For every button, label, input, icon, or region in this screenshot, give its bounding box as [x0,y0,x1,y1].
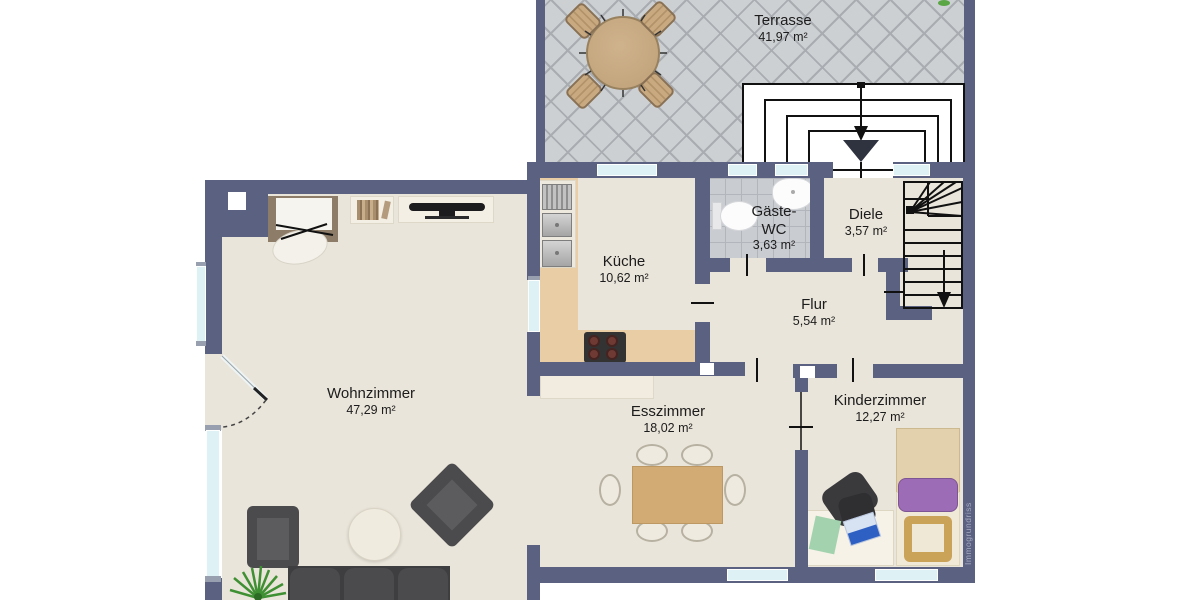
shaft [800,366,815,378]
stove [584,332,626,363]
wall-segment [695,266,710,284]
room-label-esszimmer: Esszimmer 18,02 m² [631,403,705,435]
books-icon [357,200,379,220]
bed-foot-chair [904,516,952,562]
window-icon [893,164,930,176]
bed-foot-inner [912,524,944,552]
book-icon [381,201,391,220]
desk-top [276,198,332,230]
room-label-flur: Flur 5,54 m² [793,296,835,328]
armchair-seat [427,480,478,531]
tv-sideboard [398,196,494,223]
wall-segment [710,258,730,272]
wall-segment [527,162,540,280]
room-name: Terrasse [754,12,812,30]
wall-segment [695,322,710,362]
wall-segment [536,0,545,164]
room-name: Kinderzimmer [834,392,927,410]
drain-icon [555,251,559,255]
drain-icon [555,223,559,227]
room-name: Flur [793,296,835,314]
room-name: Gäste-WC [742,203,806,238]
sofa [288,566,450,600]
room-area: 10,62 m² [599,271,648,286]
wall-segment [824,258,852,272]
chimney-shaft [228,192,246,210]
window-icon [875,569,938,581]
shaft [700,363,714,375]
armchair [247,506,299,568]
room-area: 18,02 m² [631,421,705,436]
wall-segment [964,0,975,164]
wall-segment [810,176,824,272]
window-icon [597,164,657,176]
room-label-diele: Diele 3,57 m² [845,206,887,238]
room-area: 41,97 m² [754,30,812,45]
window-icon [196,266,206,342]
dining-chair [599,474,621,506]
sideboard [540,374,654,399]
watermark: Immogrundriss [963,455,973,565]
room-name: Wohnzimmer [327,385,415,403]
room-name: Esszimmer [631,403,705,421]
outside-strip [205,162,527,180]
sofa-cushion [344,568,394,600]
burner-icon [588,348,600,360]
wall-segment [695,176,710,266]
room-label-terrasse: Terrasse 41,97 m² [754,12,812,44]
room-label-gaeste-wc: Gäste-WC 3,63 m² [742,203,806,253]
room-name: Diele [845,206,887,224]
room-area: 5,54 m² [793,314,835,329]
window-icon [206,430,220,578]
bed [896,428,960,566]
room-area: 12,27 m² [834,410,927,425]
wall-segment [205,180,222,354]
door-opening-floor [205,354,222,430]
window-cap [196,341,206,346]
wall-segment [873,364,975,378]
armchair-seat [257,518,289,560]
room-label-kueche: Küche 10,62 m² [599,253,648,285]
window-icon [728,164,757,176]
sofa-cushion [398,568,448,600]
sofa-cushion [290,568,340,600]
wall-segment [795,450,808,567]
wall-segment [886,306,932,320]
window-icon [775,164,808,176]
tv-base-icon [425,216,469,219]
wall-segment [527,545,540,600]
burner-icon [606,348,618,360]
burner-icon [588,335,600,347]
terrace-plant-icon [938,0,950,6]
entrance-opening [833,162,893,178]
dish-rack-icon [542,184,572,210]
room-name: Küche [599,253,648,271]
window-icon [727,569,788,581]
dining-chair [681,444,713,466]
bookshelf [350,196,394,224]
room-area: 47,29 m² [327,403,415,418]
exterior-stair-area [743,84,966,162]
dining-table [632,466,723,524]
drain-icon [791,190,795,194]
burner-icon [606,335,618,347]
bed-blanket [898,478,958,512]
dining-chair [636,444,668,466]
dining-chair [724,474,746,506]
room-area: 3,63 m² [742,238,806,253]
wall-segment [795,378,808,392]
floor-plan: Terrasse 41,97 m² Küche 10,62 m² Gäste-W… [0,0,1200,600]
coffee-table [348,508,401,561]
room-area: 3,57 m² [845,224,887,239]
window-icon [528,280,540,332]
room-label-wohnzimmer: Wohnzimmer 47,29 m² [327,385,415,417]
window-cap [205,576,221,582]
room-label-kinderzimmer: Kinderzimmer 12,27 m² [834,392,927,424]
